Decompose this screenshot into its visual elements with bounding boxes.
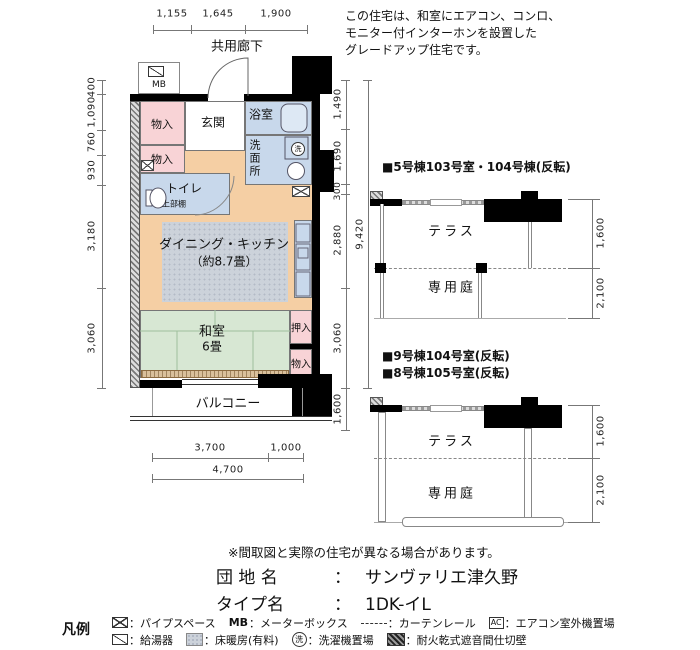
dim-tick xyxy=(152,453,153,462)
mb-label: MB xyxy=(152,80,166,90)
dim-tick xyxy=(152,474,153,483)
dim-line-bottom-1 xyxy=(152,458,303,459)
variant1-post xyxy=(478,273,482,318)
variant1-garden-bottom-line xyxy=(374,318,566,319)
dim-ext xyxy=(568,268,600,269)
dim-tick xyxy=(97,185,106,186)
variant2-window xyxy=(430,405,462,412)
variant1-title: ■5号棟103号室・104号棟(反転) xyxy=(382,158,571,175)
dim-left-930: 930 xyxy=(87,160,98,181)
curtain-rail-icon xyxy=(361,623,387,625)
closet-label: 押入 xyxy=(291,320,311,335)
dim-right-3060: 3,060 xyxy=(333,322,344,353)
dim-right-300: 300 xyxy=(333,182,343,201)
variant2-terrace-garden-line xyxy=(374,458,566,459)
dim-right-1690: 1,690 xyxy=(333,140,344,171)
variant1-fence-foot xyxy=(375,263,386,273)
ac-icon: AC xyxy=(489,617,504,629)
dim-tick xyxy=(303,453,304,462)
variant2-post xyxy=(524,428,532,522)
toilet-shelf-label: 上部棚 xyxy=(162,199,186,210)
variant2-post xyxy=(378,412,386,522)
dim-tick xyxy=(341,288,350,289)
note-line-2: モニター付インターホンを設置した xyxy=(345,25,560,42)
dim-tick xyxy=(341,430,350,431)
floorplan-sheet: この住宅は、和室にエアコン、コンロ、 モニター付インターホンを設置した グレード… xyxy=(0,0,700,650)
wall-right xyxy=(312,94,320,388)
type-colon: ： xyxy=(334,595,351,615)
legend-pipe-space: ：パイプスペース xyxy=(112,615,216,631)
balcony-side-line xyxy=(152,388,153,416)
dim-left-760: 760 xyxy=(87,132,98,153)
entrance-door-arc xyxy=(208,58,248,98)
dim-left-400: 400 xyxy=(87,77,98,98)
dim-tick xyxy=(303,474,304,483)
variant2-building-block xyxy=(484,405,562,428)
firewall-icon xyxy=(387,633,405,646)
tatami-size-label: 6畳 xyxy=(202,338,222,355)
dim-ext xyxy=(568,458,600,459)
type-name-value: 1DK-イL xyxy=(365,595,431,615)
washer-mark: 洗 xyxy=(291,142,305,156)
dim-ext xyxy=(568,199,600,200)
variant2-dim-2100: 2,100 xyxy=(596,474,607,505)
storage-c-label: 物入 xyxy=(291,356,311,371)
note-line-1: この住宅は、和室にエアコン、コンロ、 xyxy=(345,8,560,25)
dim-ext xyxy=(568,405,600,406)
dim-line-left xyxy=(102,80,103,388)
variant1-wall-seg xyxy=(370,199,402,206)
variant1-terrace-label: テラス xyxy=(428,221,476,240)
type-name-label: タイプ名 xyxy=(216,590,320,615)
dim-ext xyxy=(568,318,600,319)
legend-floor-heating: ：床暖房(有料) xyxy=(186,632,279,648)
dim-tick xyxy=(363,80,372,81)
balcony-label: バルコニー xyxy=(196,393,261,412)
corridor-label: 共用廊下 xyxy=(211,36,263,55)
fireproof-partition-wall xyxy=(130,101,140,388)
dim-tick xyxy=(97,94,106,95)
variant2-footing-bar xyxy=(402,517,564,527)
dim-line-right-total xyxy=(368,80,369,388)
variant1-post xyxy=(380,273,384,318)
type-name-row: タイプ名：1DK-イL xyxy=(216,590,431,615)
variant1-dim-2100: 2,100 xyxy=(596,277,607,308)
dim-tick xyxy=(307,25,308,34)
legend-ac: AC ：エアコン室外機置場 xyxy=(489,615,615,631)
storage-a-label: 物入 xyxy=(151,116,173,132)
legend-washer: 洗 ：洗濯機置場 xyxy=(292,632,374,648)
dk-label: ダイニング・キッチン xyxy=(159,234,289,253)
dim-bottom-total-4700: 4,700 xyxy=(212,465,243,476)
mb-abbr: MB xyxy=(229,616,248,629)
variant2-garden-label: 専用庭 xyxy=(428,483,476,502)
dim-top-1645: 1,645 xyxy=(202,9,233,20)
legend-row-2: ：給湯器 ：床暖房(有料) 洗 ：洗濯機置場 ：耐火乾式遮音間仕切壁 xyxy=(112,631,697,648)
dim-tick xyxy=(191,25,192,34)
washer-icon: 洗 xyxy=(292,632,307,647)
dim-tick xyxy=(268,453,269,462)
dk-size-label: （約8.7畳） xyxy=(190,253,257,270)
legend-title: 凡例 xyxy=(62,619,90,639)
storage-b-label: 物入 xyxy=(151,151,173,167)
sliding-window xyxy=(182,379,258,385)
dim-left-3060: 3,060 xyxy=(87,322,98,353)
legend-mb: MB ：メーターボックス xyxy=(229,615,348,631)
dim-line-variant2 xyxy=(592,405,593,522)
legend-firewall-text: ：耐火乾式遮音間仕切壁 xyxy=(406,632,527,648)
bath-label: 浴室 xyxy=(249,106,273,123)
note-line-3: グレードアップ住宅です。 xyxy=(345,42,560,59)
variant1-terrace-garden-line xyxy=(374,268,566,269)
wall-corner-block xyxy=(292,56,332,94)
estate-colon: ： xyxy=(334,568,351,588)
legend-curtain-text: ：カーテンレール xyxy=(388,615,476,631)
dim-right-total-9420: 9,420 xyxy=(355,218,366,249)
dim-tick xyxy=(363,388,372,389)
variant1-building-block xyxy=(484,199,562,222)
variant2-title-2: ■8号棟105号室(反転) xyxy=(382,364,510,381)
variant2-title-1: ■9号棟104号室(反転) xyxy=(382,347,510,364)
wall-balcony-block xyxy=(292,388,332,416)
dim-tick xyxy=(97,130,106,131)
floor-heating-icon xyxy=(186,633,203,646)
dim-ext xyxy=(568,522,600,523)
legend-water-heater: ：給湯器 xyxy=(112,632,173,648)
legend-heater-text: ：給湯器 xyxy=(129,632,173,648)
legend-pipe-space-text: ：パイプスペース xyxy=(129,615,216,631)
wall-bottom-right xyxy=(258,374,332,388)
dim-tick xyxy=(341,129,350,130)
legend-row-1: ：パイプスペース MB ：メーターボックス ：カーテンレール AC ：エアコン室… xyxy=(112,614,697,631)
variant2-dim-1600: 1,600 xyxy=(596,415,607,446)
dim-right-2880: 2,880 xyxy=(333,224,344,255)
dim-bottom-3700: 3,700 xyxy=(194,443,225,454)
variant2-building-tab xyxy=(521,397,538,406)
estate-name-label: 団 地 名 xyxy=(216,563,320,588)
dim-tick xyxy=(341,80,350,81)
dim-right-1490: 1,490 xyxy=(333,88,344,119)
dim-tick xyxy=(97,80,106,81)
legend-floor-heating-text: ：床暖房(有料) xyxy=(204,632,279,648)
entrance-label: 玄関 xyxy=(201,114,225,131)
disclaimer: ※間取図と実際の住宅が異なる場合があります。 xyxy=(228,542,500,561)
dim-line-bottom-2 xyxy=(152,479,303,480)
variant1-building-tab xyxy=(521,191,538,200)
dim-line-balcony xyxy=(346,388,347,430)
balcony-edge-line xyxy=(130,420,332,421)
dim-balcony-1600: 1,600 xyxy=(333,393,344,424)
kitchen-counter xyxy=(294,220,312,298)
variant1-fence-foot xyxy=(476,263,487,273)
dim-tick xyxy=(153,25,154,34)
variant2-wall-seg xyxy=(370,405,402,412)
legend-firewall: ：耐火乾式遮音間仕切壁 xyxy=(387,632,527,648)
dim-tick xyxy=(97,288,106,289)
legend: ：パイプスペース MB ：メーターボックス ：カーテンレール AC ：エアコン室… xyxy=(112,614,697,648)
dim-left-1090: 1,090 xyxy=(87,96,98,127)
water-heater-icon xyxy=(148,66,164,77)
pipe-space-icon xyxy=(292,186,310,197)
variant1-post xyxy=(528,222,532,268)
washroom-label: 洗面所 xyxy=(248,139,261,178)
dim-tick xyxy=(245,25,246,34)
toilet-label: トイレ xyxy=(166,180,202,197)
dim-tick xyxy=(97,155,106,156)
balcony-side-line xyxy=(302,388,303,416)
dim-line-variant1 xyxy=(592,199,593,318)
pipe-space-icon xyxy=(112,617,128,628)
estate-name-value: サンヴァリエ津久野 xyxy=(365,568,518,588)
legend-mb-text: ：メーターボックス xyxy=(249,615,348,631)
variant1-post xyxy=(380,204,384,268)
water-heater-icon xyxy=(112,634,128,645)
variant2-terrace-label: テラス xyxy=(428,431,476,450)
estate-name-row: 団 地 名：サンヴァリエ津久野 xyxy=(216,563,518,588)
wall-top-right xyxy=(244,94,320,101)
grade-up-note: この住宅は、和室にエアコン、コンロ、 モニター付インターホンを設置した グレード… xyxy=(345,8,560,59)
dim-bottom-1000: 1,000 xyxy=(270,443,301,454)
dim-top-1155: 1,155 xyxy=(156,9,187,20)
dim-line-top xyxy=(153,30,307,31)
legend-curtain-rail: ：カーテンレール xyxy=(361,615,476,631)
legend-washer-text: ：洗濯機置場 xyxy=(308,632,374,648)
variant1-dim-1600: 1,600 xyxy=(596,217,607,248)
wall-top-left xyxy=(130,94,208,101)
dim-left-3180: 3,180 xyxy=(87,220,98,251)
legend-ac-text: ：エアコン室外機置場 xyxy=(505,615,615,631)
dim-tick xyxy=(97,388,106,389)
balcony-edge-line xyxy=(130,416,332,417)
variant1-garden-label: 専用庭 xyxy=(428,277,476,296)
wall-bottom-left xyxy=(140,380,182,388)
dim-line-right xyxy=(346,80,347,388)
dim-top-1900: 1,900 xyxy=(260,9,291,20)
variant1-window xyxy=(430,199,462,206)
